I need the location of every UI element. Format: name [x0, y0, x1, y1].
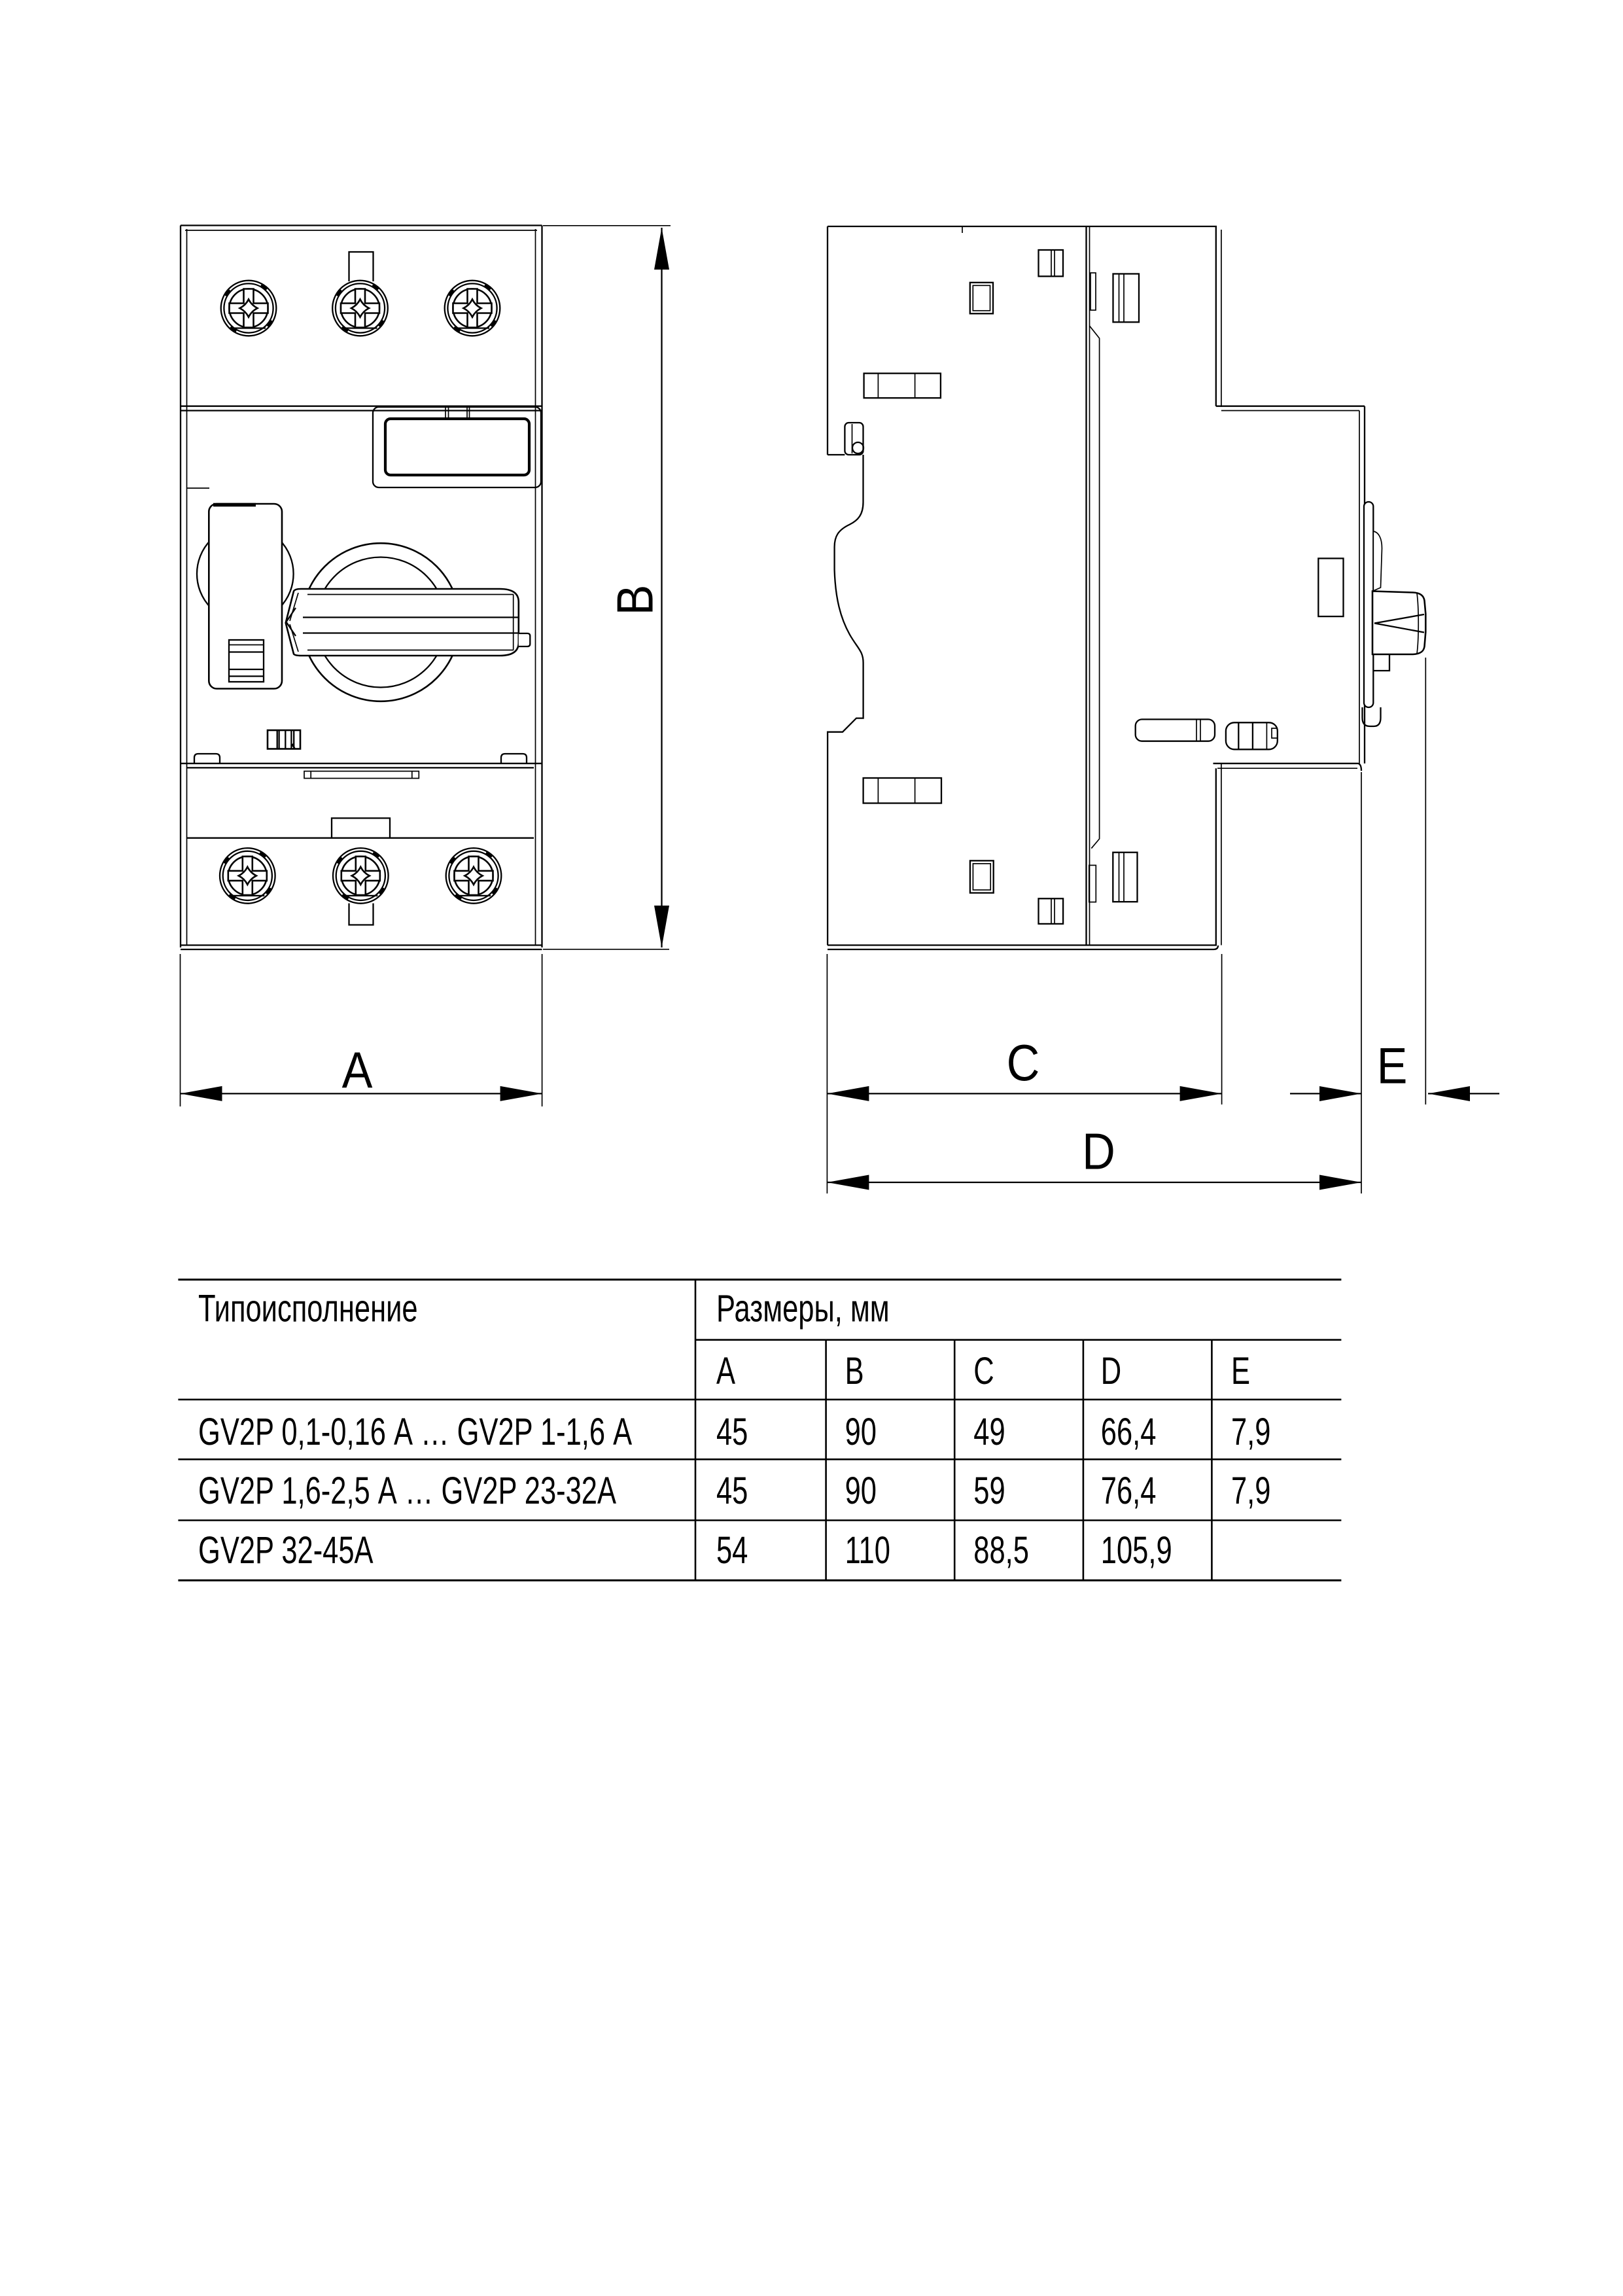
svg-text:С: С	[973, 1350, 994, 1392]
svg-text:90: 90	[845, 1470, 877, 1511]
svg-text:D: D	[1082, 1123, 1115, 1180]
svg-text:A: A	[342, 1042, 373, 1099]
svg-text:66,4: 66,4	[1101, 1411, 1157, 1453]
svg-text:49: 49	[973, 1411, 1005, 1453]
svg-text:59: 59	[973, 1470, 1005, 1511]
svg-text:45: 45	[716, 1411, 748, 1453]
svg-text:GV2P 1,6-2,5 А … GV2P 23-32А: GV2P 1,6-2,5 А … GV2P 23-32А	[198, 1470, 617, 1511]
svg-text:B: B	[606, 585, 663, 616]
svg-text:45: 45	[716, 1470, 748, 1511]
svg-text:GV2P 0,1-0,16 А … GV2P 1-1,6 А: GV2P 0,1-0,16 А … GV2P 1-1,6 А	[198, 1411, 633, 1453]
svg-text:B: B	[845, 1350, 864, 1392]
svg-text:Е: Е	[1231, 1350, 1250, 1392]
svg-text:76,4: 76,4	[1101, 1470, 1157, 1511]
svg-text:GV2P 32-45А: GV2P 32-45А	[198, 1529, 374, 1571]
svg-text:90: 90	[845, 1411, 877, 1453]
svg-text:110: 110	[845, 1529, 890, 1571]
svg-text:88,5: 88,5	[973, 1529, 1029, 1571]
svg-text:Размеры, мм: Размеры, мм	[716, 1288, 890, 1330]
svg-text:7,9: 7,9	[1231, 1411, 1270, 1453]
svg-text:А: А	[716, 1350, 736, 1392]
svg-text:C: C	[1007, 1034, 1040, 1091]
svg-text:105,9: 105,9	[1101, 1529, 1172, 1571]
svg-text:7,9: 7,9	[1231, 1470, 1270, 1511]
svg-text:E: E	[1377, 1037, 1408, 1094]
svg-text:Типоисполнение: Типоисполнение	[198, 1288, 418, 1330]
svg-text:D: D	[1101, 1350, 1121, 1392]
svg-text:54: 54	[716, 1529, 748, 1571]
